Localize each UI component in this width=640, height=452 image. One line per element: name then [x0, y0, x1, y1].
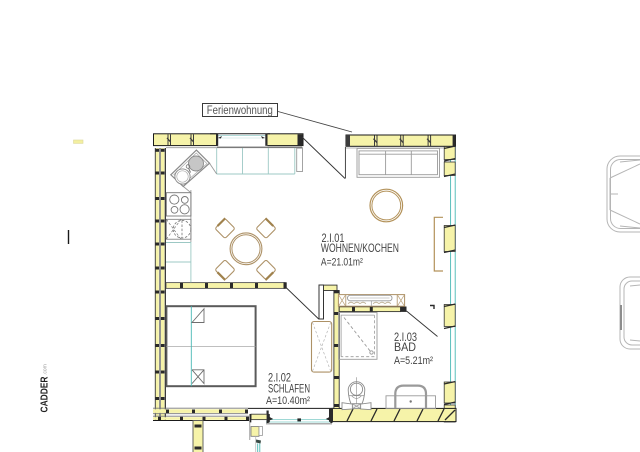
svg-text:SCHLAFEN: SCHLAFEN	[268, 381, 310, 395]
svg-text:BAD: BAD	[394, 340, 416, 354]
svg-text:CADDER: CADDER	[40, 376, 51, 413]
svg-text:A=5.21m²: A=5.21m²	[394, 355, 433, 367]
svg-text:A=10.40m²: A=10.40m²	[266, 395, 310, 407]
svg-text:Ferienwohnung: Ferienwohnung	[207, 103, 273, 117]
svg-text:A=21.01m²: A=21.01m²	[321, 257, 363, 269]
svg-text:.com: .com	[43, 364, 49, 375]
svg-text:WOHNEN/KOCHEN: WOHNEN/KOCHEN	[321, 241, 399, 255]
